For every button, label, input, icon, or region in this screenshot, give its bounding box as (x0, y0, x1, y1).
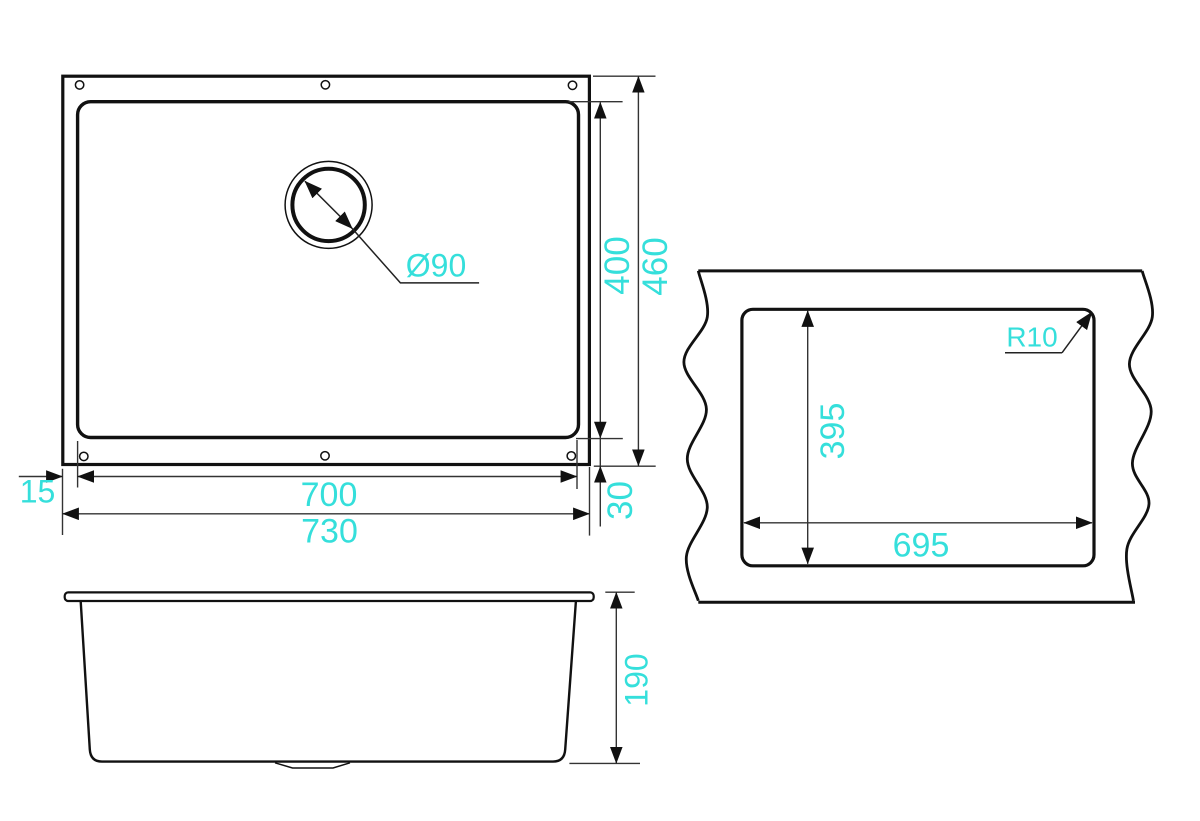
svg-text:695: 695 (893, 527, 950, 565)
svg-text:395: 395 (814, 403, 852, 460)
svg-text:Ø90: Ø90 (406, 248, 466, 284)
svg-text:R10: R10 (1006, 322, 1057, 353)
svg-text:730: 730 (301, 513, 358, 551)
svg-text:400: 400 (598, 236, 637, 294)
svg-text:700: 700 (301, 476, 358, 514)
svg-text:190: 190 (618, 653, 654, 706)
svg-text:30: 30 (601, 481, 640, 520)
svg-text:15: 15 (20, 474, 56, 510)
svg-text:460: 460 (636, 237, 675, 295)
